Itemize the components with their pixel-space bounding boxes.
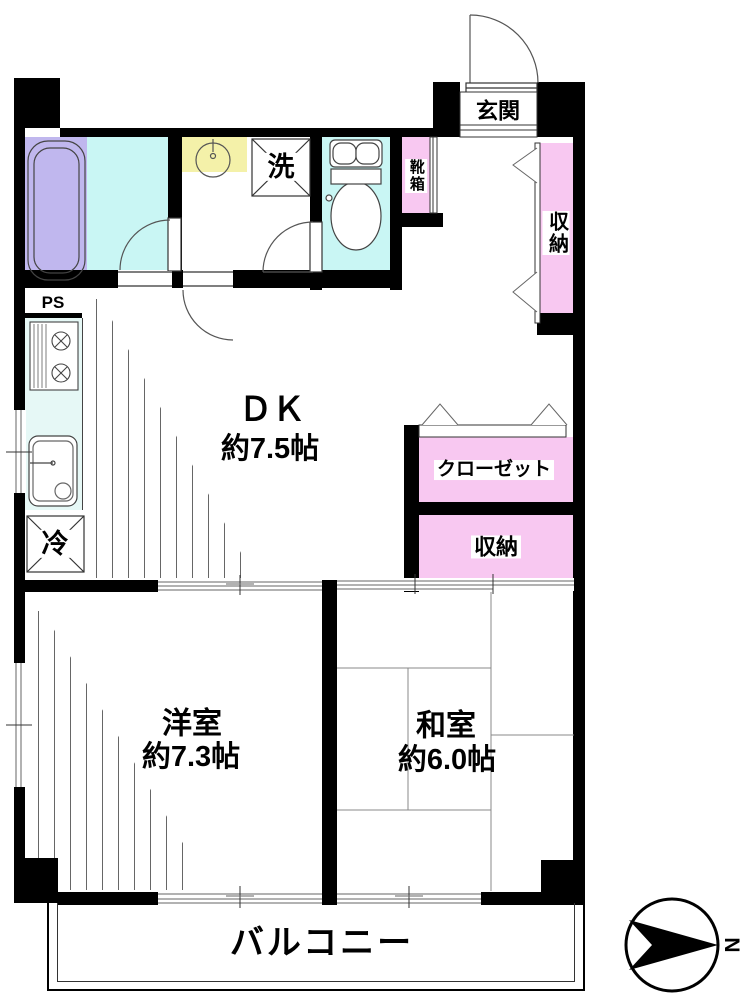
shoe-box-label: 靴箱	[405, 159, 427, 193]
dk-name: ＤＫ	[239, 393, 305, 428]
hall-storage-label: 収納	[543, 211, 570, 255]
washbasin-icon	[196, 139, 230, 177]
dk-size: 約7.5帖	[221, 434, 319, 464]
bathroom-door-icon	[118, 218, 181, 287]
toilet-icon	[326, 140, 382, 250]
toilet-door-icon	[263, 222, 322, 272]
closet-label: クローゼット	[434, 460, 554, 480]
hall-storage-doors	[513, 143, 540, 323]
closet-doors	[419, 404, 567, 437]
pipe-space-label: PS	[42, 294, 65, 312]
washroom-door-icon	[183, 271, 233, 340]
track-lines	[6, 410, 574, 908]
japanese-room-name: 和室	[416, 710, 476, 742]
bathtub-icon	[28, 141, 85, 280]
floor-plan: 玄関 靴箱 収納 洗 PS 冷 ＤＫ 約7.5帖 クローゼット 収納 洋室 約7…	[0, 0, 742, 1000]
stove-icon	[30, 322, 78, 390]
refrigerator-label: 冷	[39, 530, 72, 558]
fixture-overlay	[0, 0, 742, 1000]
compass-icon	[626, 899, 718, 991]
western-room-size: 約7.3帖	[142, 742, 240, 772]
balcony-label: バルコニー	[230, 926, 414, 962]
western-room-name: 洋室	[162, 708, 222, 740]
compass-north-label: N	[719, 937, 742, 952]
shoe-box-front	[430, 137, 437, 213]
storage-label: 収納	[471, 535, 521, 558]
entrance-door-icon	[466, 15, 538, 93]
entrance-label: 玄関	[476, 99, 520, 122]
kitchen-sink-icon	[29, 436, 77, 506]
japanese-room-size: 約6.0帖	[398, 745, 496, 775]
washer-label: 洗	[265, 153, 298, 181]
